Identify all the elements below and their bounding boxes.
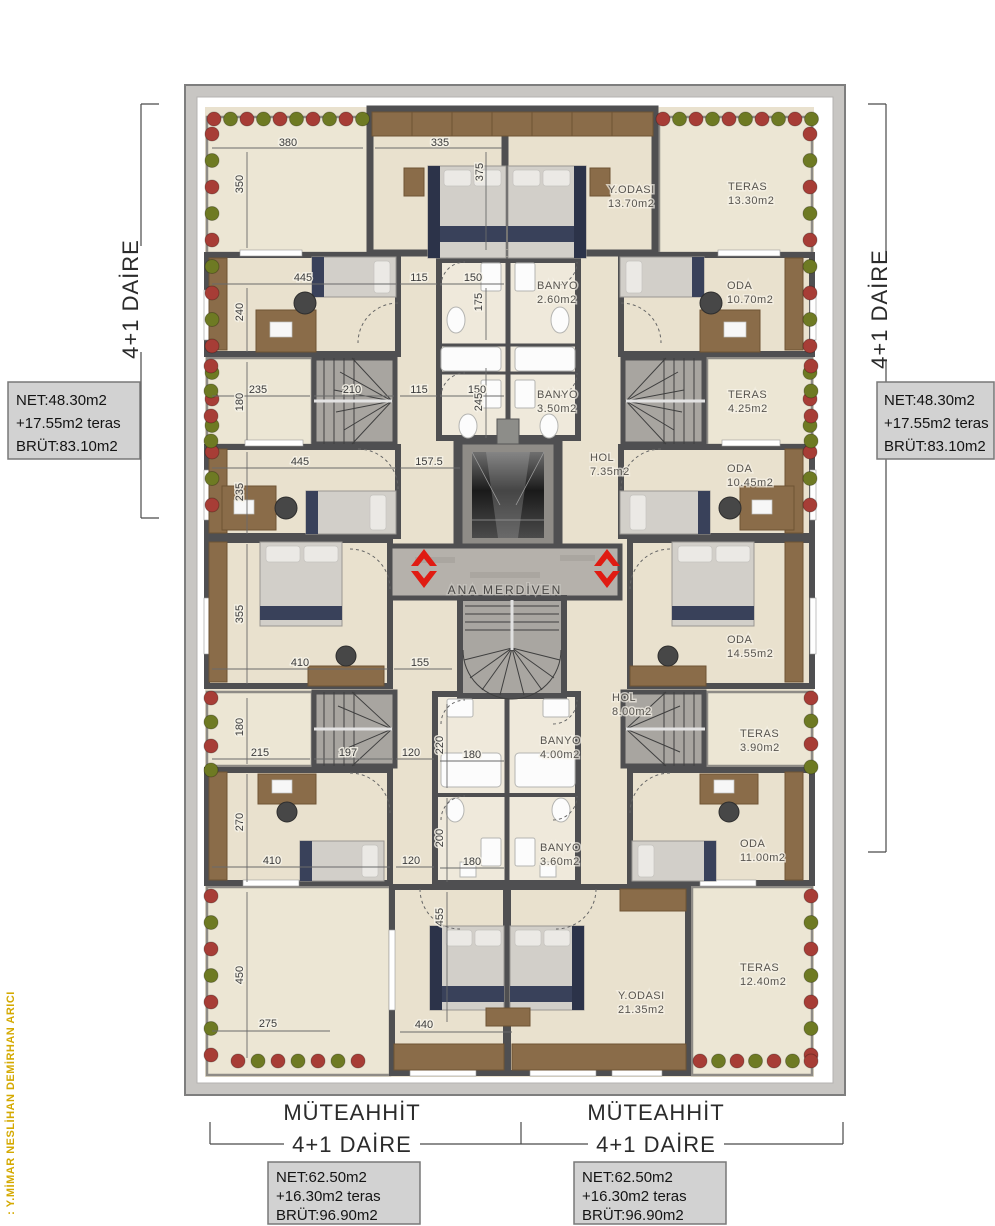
architect-credit: : Y.MİMAR NESLİHAN DEMİRHAN ARICI	[4, 991, 17, 1215]
room-area: 7.35m2	[590, 466, 630, 478]
room-label: BANYO	[537, 389, 578, 401]
builder-label: MÜTEAHHİT	[587, 1100, 724, 1125]
bed-single-d-right	[620, 491, 710, 534]
room-area: 10.45m2	[727, 477, 773, 489]
terrace-area: +16.30m2 teras	[276, 1188, 381, 1205]
bush-icon	[804, 969, 818, 983]
bed-single-b-right	[620, 257, 704, 297]
bush-icon	[804, 916, 818, 930]
room-label: ODA	[727, 634, 753, 646]
bush-icon	[804, 409, 818, 423]
bush-icon	[739, 112, 753, 126]
bush-icon	[673, 112, 687, 126]
bush-icon	[323, 112, 337, 126]
dim-label: 410	[263, 855, 281, 867]
bush-icon	[205, 472, 219, 486]
room-area: 11.00m2	[740, 852, 786, 864]
dim-label: 410	[291, 657, 309, 669]
room-label: Y.ODASI	[618, 990, 665, 1002]
main-stair-label: ANA MERDİVEN	[448, 583, 563, 597]
terrace-area: +17.55m2 teras	[884, 415, 989, 432]
room-area: 4.00m2	[540, 749, 580, 761]
dim-label: 180	[234, 718, 246, 736]
dim-label: 175	[473, 293, 485, 311]
bush-icon	[804, 737, 818, 751]
bush-icon	[804, 995, 818, 1009]
bush-icon	[207, 112, 221, 126]
gross-area: BRÜT:96.90m2	[582, 1206, 684, 1224]
bush-icon	[803, 313, 817, 327]
dim-label: 180	[234, 393, 246, 411]
unit-type-label: 4+1 DAİRE	[596, 1132, 716, 1157]
builder-label: MÜTEAHHİT	[283, 1100, 420, 1125]
bottom-left-unit-annotation: MÜTEAHHİT 4+1 DAİRE NET:62.50m2 +16.30m2…	[210, 1100, 588, 1224]
bush-icon	[722, 112, 736, 126]
bush-icon	[706, 112, 720, 126]
dim-label: 275	[259, 1018, 277, 1030]
dim-label: 380	[279, 137, 297, 149]
room-label: Y.ODASI	[608, 184, 655, 196]
room-area: 3.60m2	[540, 856, 580, 868]
nightstand	[486, 1008, 530, 1026]
dim-label: 450	[234, 966, 246, 984]
net-area: NET:62.50m2	[276, 1169, 367, 1186]
bush-icon	[204, 889, 218, 903]
bed-single-g-left	[300, 841, 384, 881]
bush-icon	[271, 1054, 285, 1068]
bush-icon	[804, 384, 818, 398]
bush-icon	[240, 112, 254, 126]
bush-icon	[804, 942, 818, 956]
bush-icon	[767, 1054, 781, 1068]
bottom-right-unit-annotation: MÜTEAHHİT 4+1 DAİRE NET:62.50m2 +16.30m2…	[574, 1100, 843, 1224]
bush-icon	[204, 691, 218, 705]
bush-icon	[804, 434, 818, 448]
dim-label: 350	[234, 175, 246, 193]
bush-icon	[251, 1054, 265, 1068]
bush-icon	[331, 1054, 345, 1068]
room-label: TERAS	[728, 181, 767, 193]
nightstand	[404, 168, 424, 196]
floor-plan-sheet: 380 350 335 375 445 115 150 240 175 235 …	[0, 0, 995, 1226]
room-label: HOL	[612, 692, 636, 704]
bush-icon	[339, 112, 353, 126]
bush-icon	[803, 472, 817, 486]
bush-icon	[804, 1022, 818, 1036]
bush-icon	[204, 409, 218, 423]
room-label: HOL	[590, 452, 614, 464]
bush-icon	[803, 260, 817, 274]
bush-icon	[257, 112, 271, 126]
room-label: ODA	[727, 463, 753, 475]
bed-double-e-left	[260, 542, 342, 626]
gross-area: BRÜT:96.90m2	[276, 1206, 378, 1224]
bush-icon	[204, 1022, 218, 1036]
room-area: 3.90m2	[740, 742, 780, 754]
room-label: ODA	[727, 280, 753, 292]
bed-double-top-left	[428, 166, 506, 258]
bush-icon	[205, 498, 219, 512]
room-area: 14.55m2	[727, 648, 773, 660]
dim-label: 115	[410, 384, 428, 396]
dim-label: 115	[410, 272, 428, 284]
bush-icon	[730, 1054, 744, 1068]
bush-icon	[803, 498, 817, 512]
shrub-row	[205, 127, 219, 512]
room-area: 10.70m2	[727, 294, 773, 306]
bush-icon	[803, 233, 817, 247]
bush-icon	[204, 942, 218, 956]
bush-icon	[712, 1054, 726, 1068]
bush-icon	[290, 112, 304, 126]
shrub-row	[803, 127, 817, 512]
bush-icon	[804, 889, 818, 903]
dim-label: 157.5	[415, 456, 443, 468]
bush-icon	[231, 1054, 245, 1068]
bush-icon	[803, 207, 817, 221]
dim-label: 270	[234, 813, 246, 831]
terrace-mid-left-upper	[207, 358, 312, 445]
bush-icon	[311, 1054, 325, 1068]
dim-label: 180	[463, 856, 481, 868]
bush-icon	[306, 112, 320, 126]
dim-label: 445	[291, 456, 309, 468]
bed-double-bottom-left	[430, 926, 504, 1010]
bed-single-b-left	[312, 257, 396, 297]
stairs-upper-left	[314, 358, 395, 444]
bush-icon	[803, 180, 817, 194]
bush-icon	[693, 1054, 707, 1068]
gross-area: BRÜT:83.10m2	[884, 437, 986, 455]
dim-label: 197	[339, 747, 357, 759]
room-label: ODA	[740, 838, 766, 850]
bush-icon	[224, 112, 238, 126]
bush-icon	[803, 127, 817, 141]
room-label: BANYO	[540, 735, 581, 747]
bush-icon	[804, 1054, 818, 1068]
dim-label: 440	[415, 1019, 433, 1031]
room-label: BANYO	[537, 280, 578, 292]
bush-icon	[204, 916, 218, 930]
unit-type-label-right: 4+1 DAİRE	[867, 249, 892, 369]
bush-icon	[803, 154, 817, 168]
bush-icon	[803, 339, 817, 353]
bush-icon	[273, 112, 287, 126]
bush-icon	[205, 313, 219, 327]
bush-icon	[204, 995, 218, 1009]
bush-icon	[786, 1054, 800, 1068]
bush-icon	[772, 112, 786, 126]
room-label: TERAS	[740, 728, 779, 740]
bush-icon	[755, 112, 769, 126]
dim-label: 445	[294, 272, 312, 284]
bush-icon	[204, 969, 218, 983]
unit-type-label-left: 4+1 DAİRE	[118, 239, 143, 359]
dim-label: 150	[464, 272, 482, 284]
dim-label: 335	[431, 137, 449, 149]
dim-label: 220	[434, 736, 446, 754]
bush-icon	[351, 1054, 365, 1068]
room-area: 12.40m2	[740, 976, 786, 988]
dim-label: 120	[402, 747, 420, 759]
bush-icon	[205, 127, 219, 141]
dim-label: 235	[249, 384, 267, 396]
left-unit-annotation: 4+1 DAİRE NET:48.30m2 +17.55m2 teras BRÜ…	[8, 104, 159, 518]
room-area: 13.30m2	[728, 195, 774, 207]
bush-icon	[204, 739, 218, 753]
bush-icon	[205, 154, 219, 168]
room-area: 8.00m2	[612, 706, 652, 718]
unit-type-label: 4+1 DAİRE	[292, 1132, 412, 1157]
bush-icon	[204, 359, 218, 373]
right-unit-annotation: 4+1 DAİRE NET:48.30m2 +17.55m2 teras BRÜ…	[867, 104, 994, 852]
dim-label: 200	[434, 829, 446, 847]
room-label: TERAS	[740, 962, 779, 974]
bed-double-top-right	[508, 166, 586, 258]
dim-label: 210	[343, 384, 361, 396]
net-area: NET:62.50m2	[582, 1169, 673, 1186]
spiral-stair	[460, 598, 564, 699]
bush-icon	[689, 112, 703, 126]
bed-single-g-right	[632, 841, 716, 881]
bush-icon	[804, 691, 818, 705]
room-label: TERAS	[728, 389, 767, 401]
dim-label: 375	[474, 163, 486, 181]
bush-icon	[803, 286, 817, 300]
dim-label: 455	[434, 908, 446, 926]
dim-label: 355	[234, 605, 246, 623]
bush-icon	[804, 714, 818, 728]
room-label: BANYO	[540, 842, 581, 854]
dim-label: 235	[234, 483, 246, 501]
room-area: 2.60m2	[537, 294, 577, 306]
terrace-area: +16.30m2 teras	[582, 1188, 687, 1205]
bush-icon	[656, 112, 670, 126]
bush-icon	[205, 207, 219, 221]
bush-icon	[804, 760, 818, 774]
bush-icon	[205, 260, 219, 274]
terrace-area: +17.55m2 teras	[16, 415, 121, 432]
bush-icon	[204, 715, 218, 729]
nightstand	[590, 168, 610, 196]
dim-label: 215	[251, 747, 269, 759]
dim-label: 240	[234, 303, 246, 321]
bush-icon	[205, 233, 219, 247]
bed-double-bottom-right	[510, 926, 584, 1010]
bush-icon	[204, 1048, 218, 1062]
bush-icon	[356, 112, 370, 126]
dim-label: 120	[402, 855, 420, 867]
bush-icon	[788, 112, 802, 126]
bush-icon	[804, 359, 818, 373]
terrace-mid-right-upper	[707, 358, 812, 445]
dim-label: 245	[473, 393, 485, 411]
bush-icon	[204, 763, 218, 777]
bush-icon	[291, 1054, 305, 1068]
bush-icon	[204, 434, 218, 448]
bed-single-d-left	[306, 491, 396, 534]
room-area: 13.70m2	[608, 198, 654, 210]
bush-icon	[205, 180, 219, 194]
stairs-upper-right	[623, 358, 705, 444]
bed-double-e-right	[672, 542, 754, 626]
room-area: 4.25m2	[728, 403, 768, 415]
net-area: NET:48.30m2	[884, 392, 975, 409]
net-area: NET:48.30m2	[16, 392, 107, 409]
bush-icon	[205, 339, 219, 353]
gross-area: BRÜT:83.10m2	[16, 437, 118, 455]
bush-icon	[805, 112, 819, 126]
room-area: 21.35m2	[618, 1004, 664, 1016]
bush-icon	[205, 286, 219, 300]
dim-label: 180	[463, 749, 481, 761]
dim-label: 155	[411, 657, 429, 669]
bush-icon	[749, 1054, 763, 1068]
elevator-shaft	[458, 419, 558, 548]
room-area: 3.50m2	[537, 403, 577, 415]
